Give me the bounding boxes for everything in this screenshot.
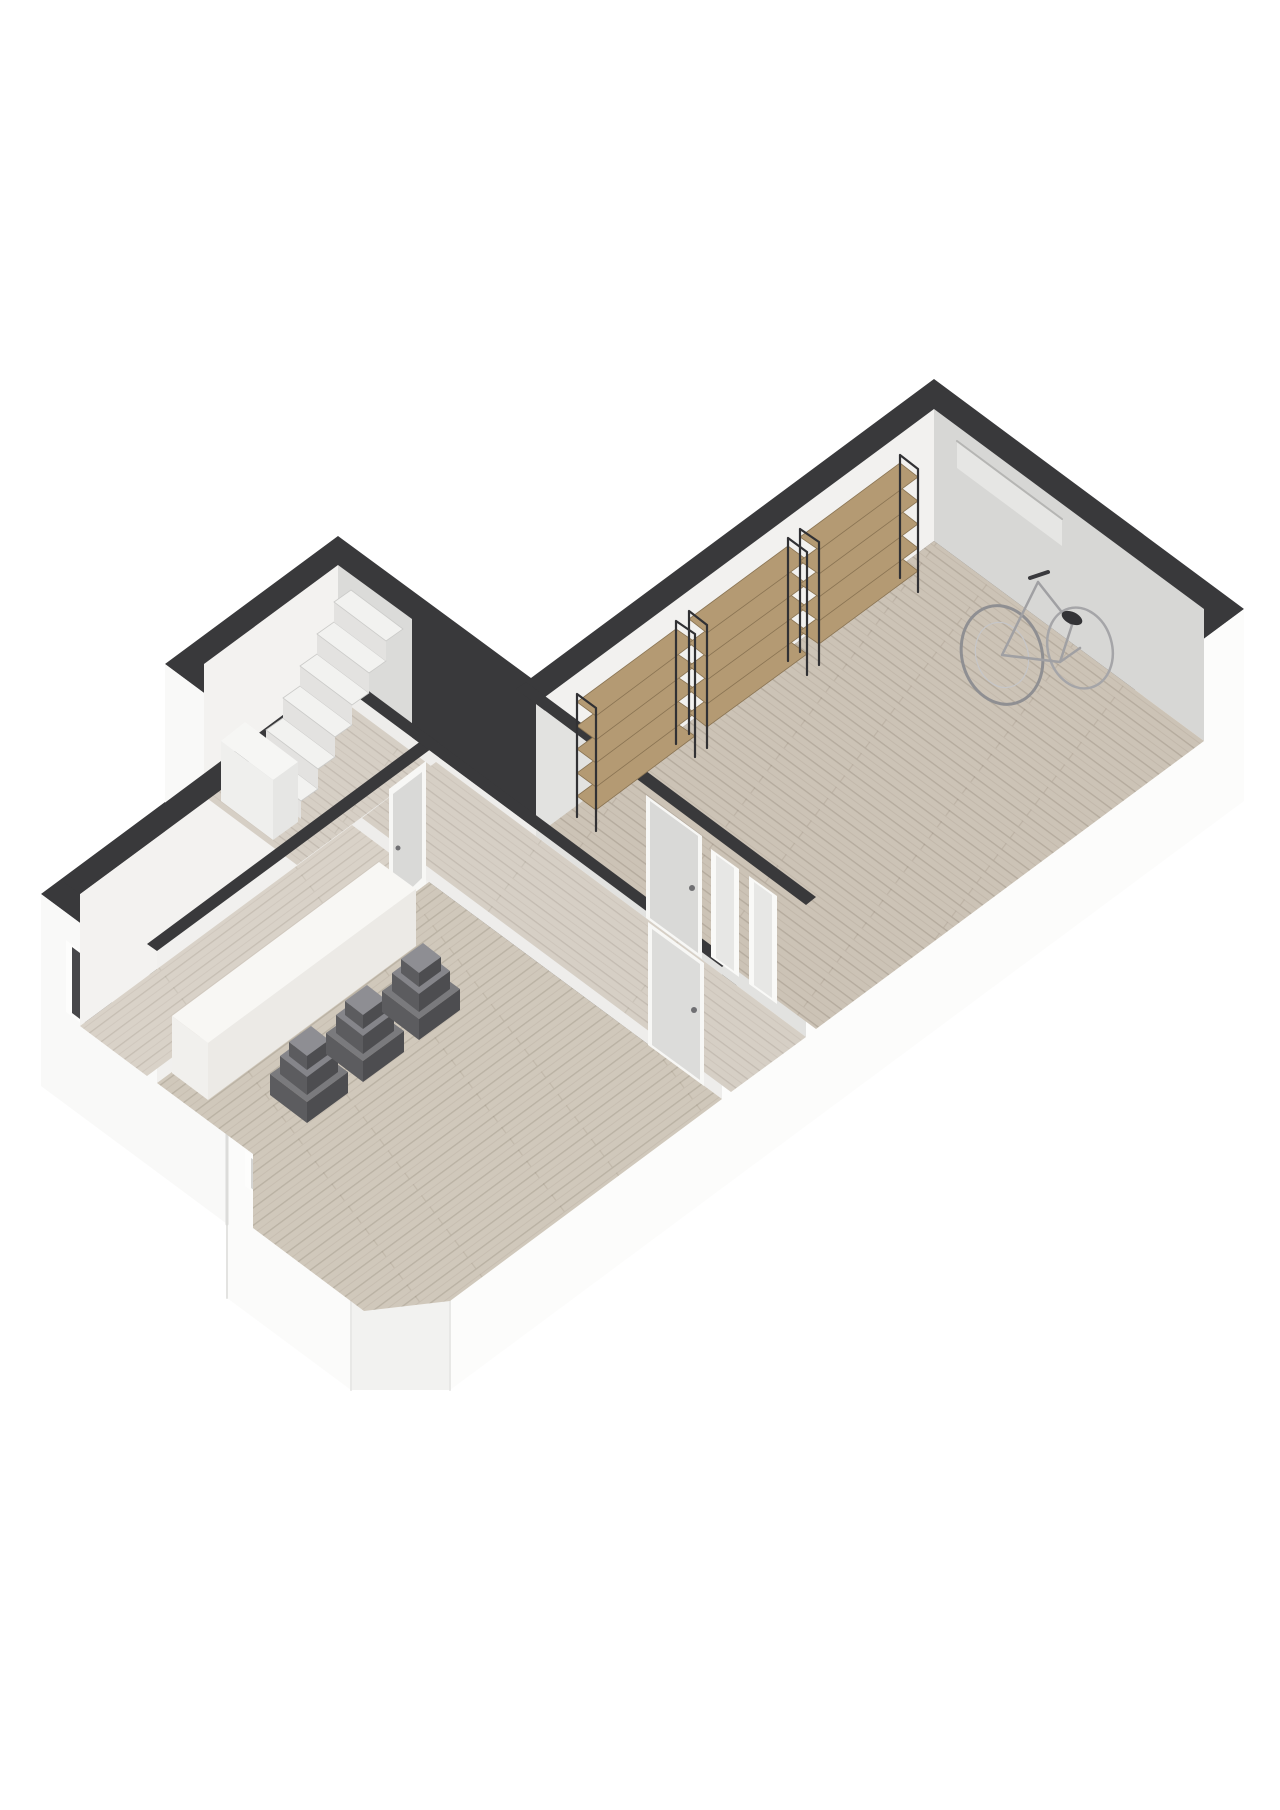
sidelight-2-glass <box>754 882 772 998</box>
door-corridor-handle <box>396 846 401 851</box>
sidelight-1-glass <box>716 855 734 971</box>
door-hallway-handle <box>691 1007 697 1013</box>
floorplan-3d-render <box>0 0 1280 1810</box>
door-storage-handle <box>689 885 695 891</box>
floorplan-svg <box>0 0 1280 1810</box>
